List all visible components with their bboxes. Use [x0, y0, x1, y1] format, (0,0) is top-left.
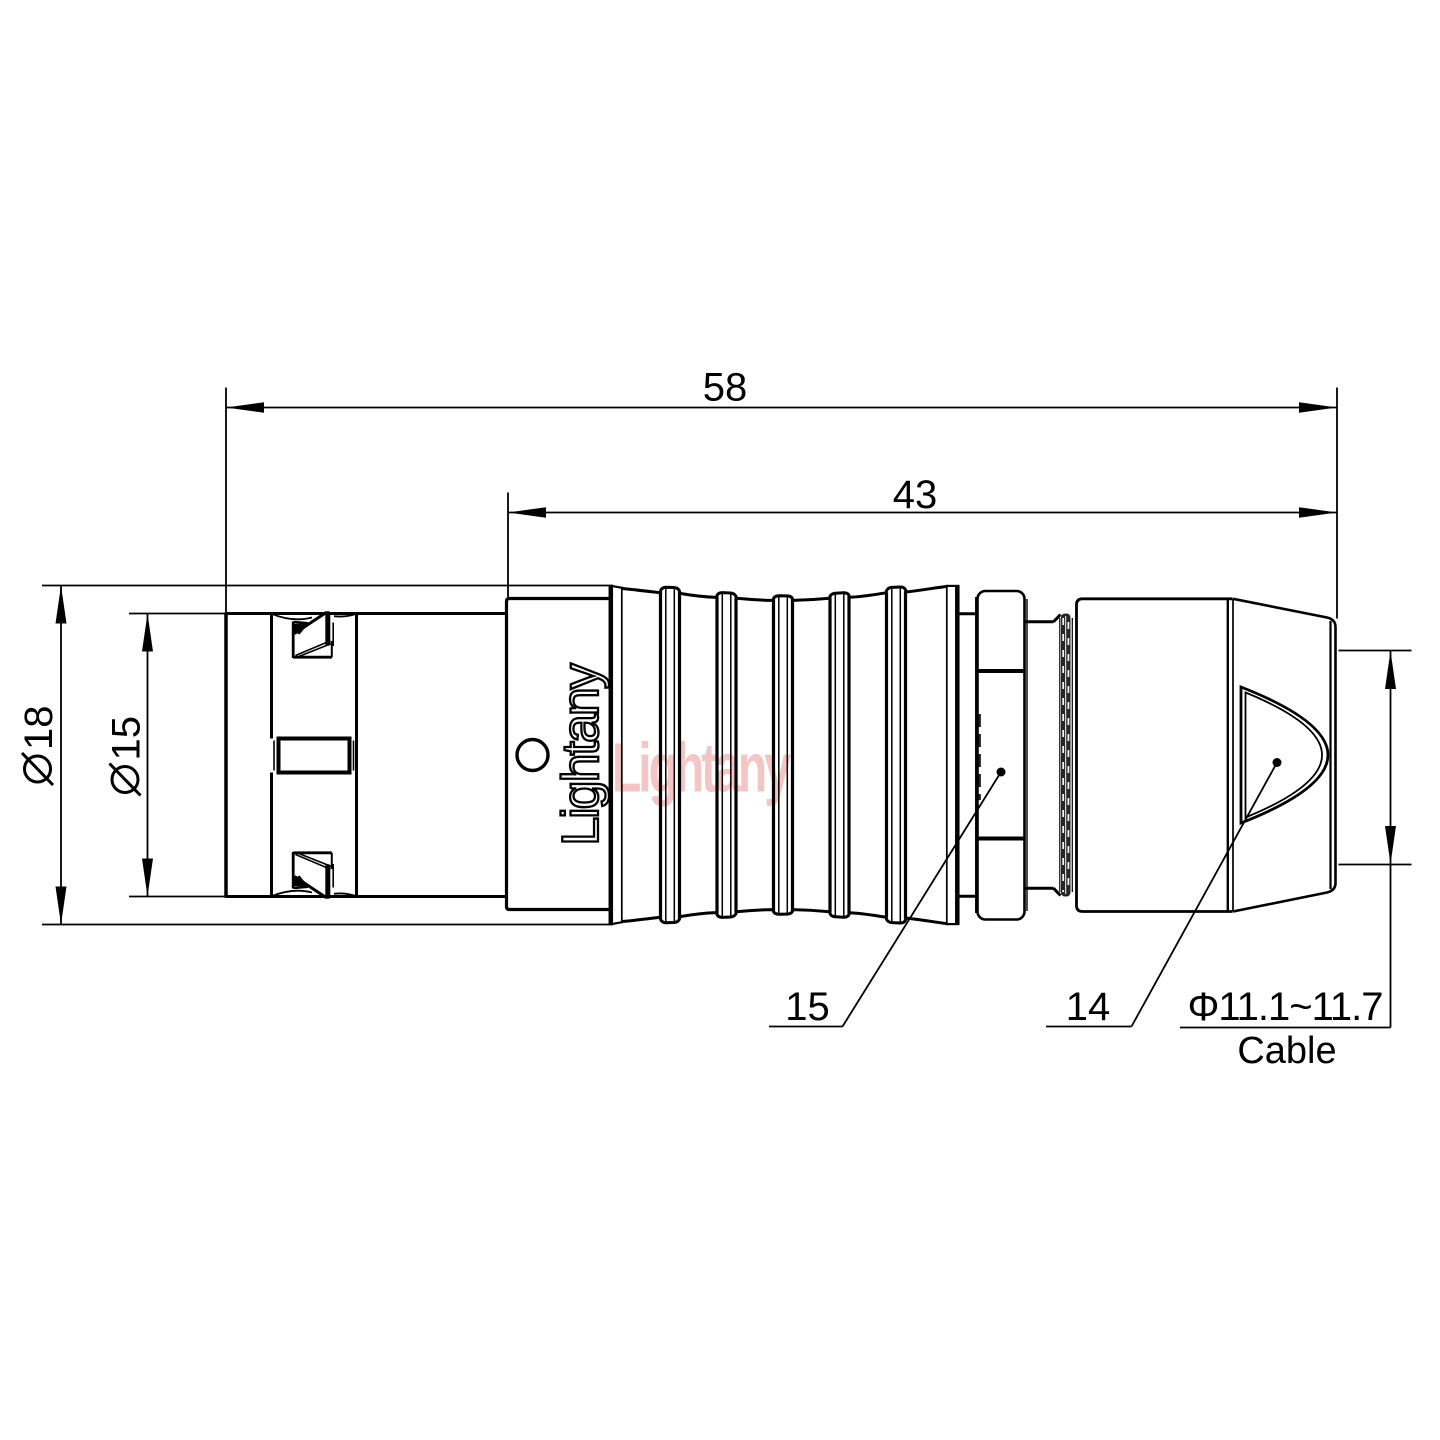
svg-text:Lightany: Lightany	[552, 663, 610, 846]
svg-text:14: 14	[1066, 985, 1111, 1029]
svg-text:Lightany: Lightany	[612, 729, 791, 807]
svg-text:18: 18	[17, 706, 61, 751]
svg-text:15: 15	[785, 985, 830, 1029]
svg-text:Φ11.1~11.7: Φ11.1~11.7	[1187, 985, 1382, 1029]
svg-text:Cable: Cable	[1237, 1030, 1336, 1072]
svg-text:58: 58	[703, 366, 748, 410]
svg-text:15: 15	[105, 716, 149, 761]
svg-text:43: 43	[893, 473, 938, 517]
